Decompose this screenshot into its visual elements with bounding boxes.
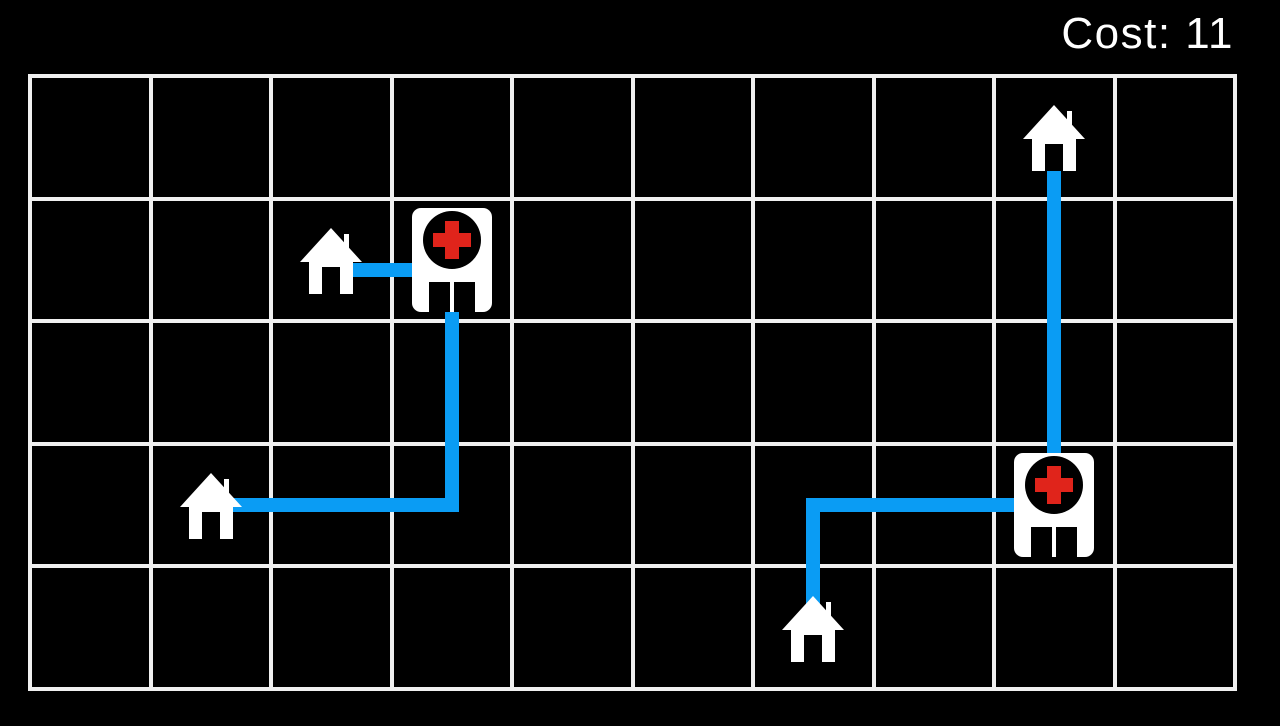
house-door [322, 267, 340, 294]
house-1-icon[interactable] [299, 226, 363, 294]
hospital-door-right [1056, 527, 1077, 557]
grid-line-horizontal [28, 687, 1237, 691]
grid-line-vertical [390, 74, 394, 691]
grid-line-horizontal [28, 564, 1237, 568]
hospital-door-left [1031, 527, 1052, 557]
house-door [202, 512, 220, 539]
grid-line-vertical [149, 74, 153, 691]
house-4-icon[interactable] [1022, 103, 1086, 171]
cost-label: Cost: 11 [1061, 9, 1234, 59]
game-stage: Cost: 11 [0, 0, 1280, 726]
grid-line-vertical [1113, 74, 1117, 691]
hospital-2-icon[interactable] [1014, 453, 1094, 557]
grid-line-vertical [269, 74, 273, 691]
grid-line-vertical [510, 74, 514, 691]
house-door [804, 635, 822, 662]
hospital-door-right [454, 282, 475, 312]
grid-line-vertical [872, 74, 876, 691]
grid-line-vertical [631, 74, 635, 691]
hospital-door-left [429, 282, 450, 312]
house-door [1045, 144, 1063, 171]
grid-line-vertical [992, 74, 996, 691]
hospital-1-icon[interactable] [412, 208, 492, 312]
grid-line-vertical [1233, 74, 1237, 691]
house-2-icon[interactable] [179, 471, 243, 539]
grid-line-vertical [751, 74, 755, 691]
grid-line-vertical [28, 74, 32, 691]
grid-line-horizontal [28, 74, 1237, 78]
house-3-icon[interactable] [781, 594, 845, 662]
